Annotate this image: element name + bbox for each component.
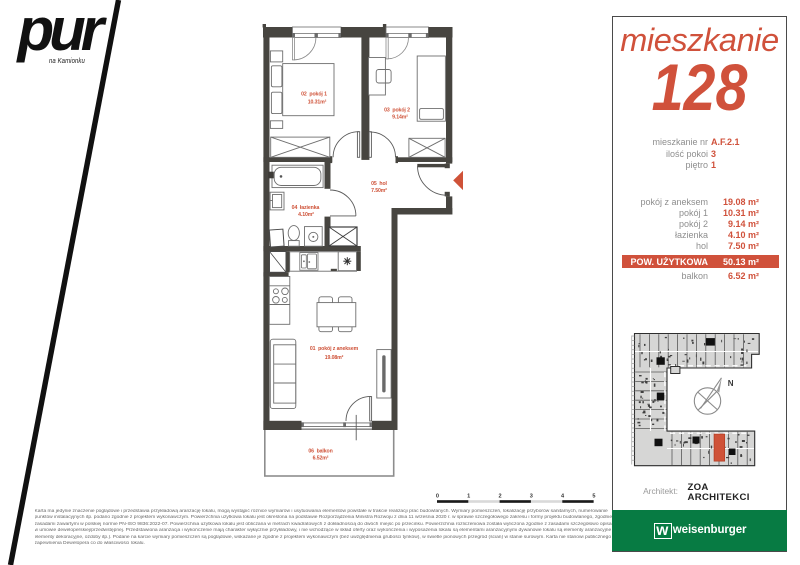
svg-text:2: 2	[498, 494, 501, 500]
svg-text:4.10m²: 4.10m²	[298, 212, 314, 218]
svg-text:N: N	[728, 379, 734, 388]
svg-text:6.52m²: 6.52m²	[313, 456, 329, 462]
svg-text:3: 3	[530, 494, 533, 500]
svg-text:7.50m²: 7.50m²	[371, 188, 387, 194]
svg-text:02 pokój 1: 02 pokój 1	[301, 92, 327, 98]
svg-text:01 pokój z aneksem: 01 pokój z aneksem	[310, 346, 359, 352]
svg-text:05 hol: 05 hol	[371, 181, 387, 187]
svg-text:4: 4	[561, 494, 565, 500]
svg-text:9.14m²: 9.14m²	[392, 115, 408, 121]
svg-text:04 łazienka: 04 łazienka	[292, 205, 320, 211]
svg-text:19.08m²: 19.08m²	[325, 355, 344, 361]
svg-text:0: 0	[436, 494, 439, 500]
svg-text:1: 1	[467, 494, 470, 500]
svg-text:5: 5	[592, 494, 595, 500]
svg-text:06 balkon: 06 balkon	[308, 449, 332, 455]
svg-text:10.31m²: 10.31m²	[308, 100, 327, 106]
svg-text:03 pokój 2: 03 pokój 2	[384, 108, 410, 114]
